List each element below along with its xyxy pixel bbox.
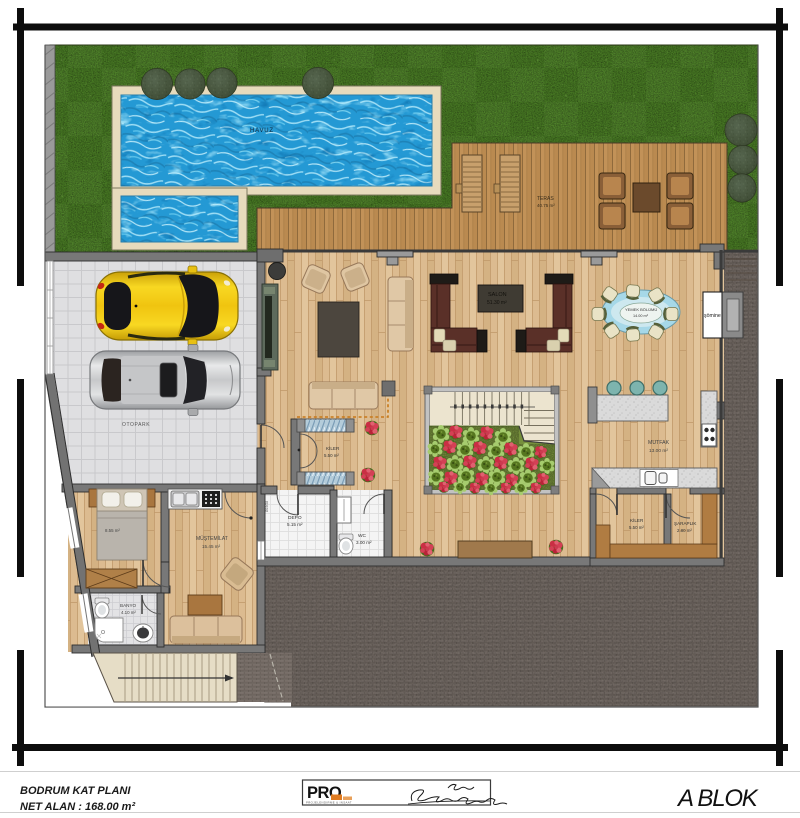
svg-text:MUTFAK: MUTFAK (648, 440, 670, 446)
svg-text:TERAS: TERAS (537, 196, 554, 202)
svg-text:4.10 m²: 4.10 m² (121, 610, 136, 615)
svg-text:HAVUZ: HAVUZ (250, 128, 274, 134)
svg-text:KİLER: KİLER (326, 445, 340, 451)
svg-text:DEPO: DEPO (288, 515, 302, 521)
svg-text:PROJELENDIRME & INSAAT: PROJELENDIRME & INSAAT (306, 801, 352, 805)
svg-text:5.50 m²: 5.50 m² (324, 453, 339, 458)
svg-text:MÜŞTEMİLAT: MÜŞTEMİLAT (196, 535, 228, 542)
svg-text:BANYO: BANYO (120, 603, 137, 608)
svg-text:şömine: şömine (704, 313, 721, 319)
svg-text:13.00 m²: 13.00 m² (649, 448, 668, 454)
svg-text:5.15 m²: 5.15 m² (287, 522, 303, 527)
svg-text:KİLER: KİLER (630, 517, 644, 523)
svg-text:ŞARAPLIK: ŞARAPLIK (674, 521, 697, 526)
svg-text:A BLOK: A BLOK (676, 785, 759, 812)
svg-text:51.30 m²: 51.30 m² (487, 300, 507, 306)
svg-text:OTOPARK: OTOPARK (122, 422, 150, 428)
svg-text:8.55 m²: 8.55 m² (105, 528, 120, 533)
svg-text:3.00 m²: 3.00 m² (356, 540, 372, 545)
svg-text:Ø19/28: Ø19/28 (265, 501, 269, 512)
svg-text:SALON: SALON (488, 292, 507, 298)
svg-text:NET ALAN : 168.00 m²: NET ALAN : 168.00 m² (20, 801, 135, 813)
svg-text:2.80 m²: 2.80 m² (677, 528, 692, 533)
svg-text:14.00 m²: 14.00 m² (633, 314, 649, 318)
svg-text:YEMEK BÖLÜMÜ: YEMEK BÖLÜMÜ (625, 307, 657, 312)
svg-text:WC: WC (358, 533, 367, 539)
svg-text:BODRUM KAT PLANI: BODRUM KAT PLANI (20, 785, 131, 797)
svg-text:15.45 m²: 15.45 m² (202, 544, 221, 549)
svg-text:5.50 m²: 5.50 m² (629, 525, 644, 530)
svg-text:40.75 m²: 40.75 m² (537, 203, 555, 208)
